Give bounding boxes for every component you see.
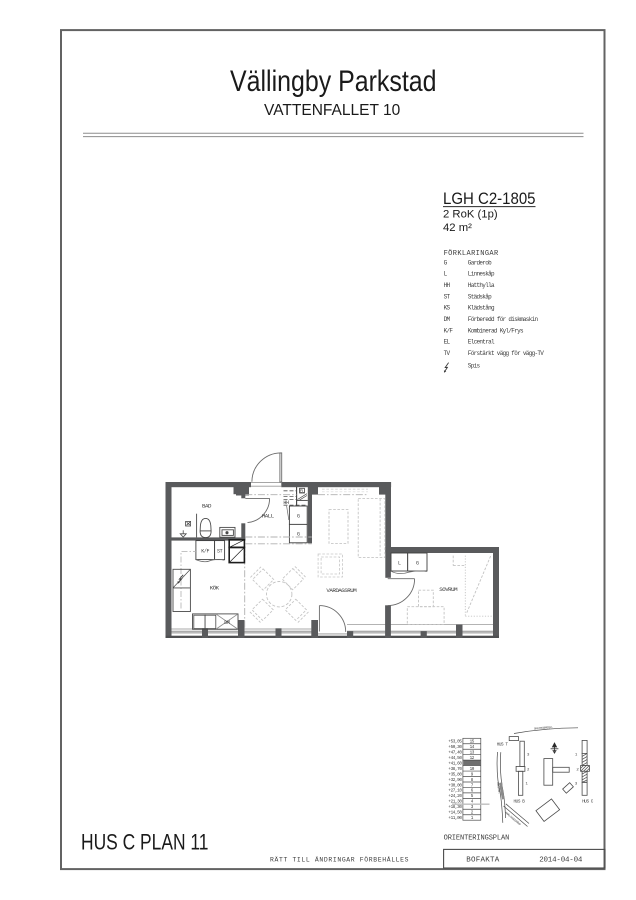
svg-text:Spis: Spis (468, 363, 481, 370)
svg-text:Städskåp: Städskåp (468, 293, 492, 300)
svg-text:SKATTEGÅRDSV.: SKATTEGÅRDSV. (534, 725, 554, 731)
svg-text:HH: HH (444, 282, 451, 289)
svg-text:2: 2 (576, 769, 579, 773)
svg-text:+27,10: +27,10 (448, 789, 462, 794)
svg-text:+47,40: +47,40 (448, 751, 462, 756)
svg-text:42 m²: 42 m² (443, 222, 472, 234)
svg-text:HH: HH (283, 500, 289, 506)
svg-text:G: G (297, 513, 300, 519)
svg-text:G: G (297, 532, 300, 538)
svg-text:KS: KS (444, 305, 451, 312)
svg-text:2014-04-04: 2014-04-04 (539, 856, 583, 864)
svg-text:DM: DM (444, 316, 451, 323)
svg-text:LGH C2-1805: LGH C2-1805 (443, 190, 536, 208)
svg-text:+11,00: +11,00 (448, 816, 462, 821)
svg-text:+24,20: +24,20 (448, 794, 462, 799)
svg-text:G: G (416, 561, 419, 567)
svg-text:2: 2 (527, 769, 530, 773)
svg-text:Förstärkt vägg för vägg-TV: Förstärkt vägg för vägg-TV (468, 350, 545, 357)
svg-text:+38,70: +38,70 (448, 767, 462, 772)
svg-text:SOVRUM: SOVRUM (439, 586, 458, 593)
svg-text:+35,80: +35,80 (448, 772, 462, 777)
svg-text:HUS C PLAN 11: HUS C PLAN 11 (81, 830, 209, 855)
svg-text:Linneskåp: Linneskåp (468, 271, 495, 278)
svg-text:2 RoK (1p): 2 RoK (1p) (443, 209, 498, 221)
svg-text:EL: EL (444, 339, 451, 346)
svg-text:EL: EL (300, 489, 305, 494)
svg-text:Klädstång: Klädstång (468, 305, 495, 312)
svg-text:FÖRKLARINGAR: FÖRKLARINGAR (444, 249, 499, 258)
svg-text:KRÄLINGEGRÄND: KRÄLINGEGRÄND (504, 811, 522, 827)
svg-text:KÖK: KÖK (210, 585, 220, 592)
svg-text:BOFAKTA: BOFAKTA (466, 856, 500, 864)
svg-text:HALL: HALL (262, 513, 275, 520)
svg-text:3: 3 (575, 783, 578, 787)
svg-text:VARDAGSRUM: VARDAGSRUM (326, 587, 357, 594)
svg-text:+30,00: +30,00 (448, 783, 462, 788)
svg-text:ST: ST (444, 293, 451, 300)
svg-text:HUS B: HUS B (514, 800, 526, 805)
svg-text:1: 1 (575, 754, 578, 758)
svg-text:ST: ST (217, 549, 223, 555)
svg-text:Hatthylla: Hatthylla (468, 282, 495, 289)
svg-text:+50,30: +50,30 (448, 745, 462, 750)
svg-text:+32,90: +32,90 (448, 778, 462, 783)
svg-text:VATTENFALLET 10: VATTENFALLET 10 (264, 102, 401, 119)
svg-text:RÄTT TILL ÄNDRINGAR FÖRBEHÅLLE: RÄTT TILL ÄNDRINGAR FÖRBEHÅLLES (270, 856, 409, 864)
svg-text:K/F: K/F (444, 327, 454, 334)
svg-text:HUS T: HUS T (497, 743, 509, 748)
svg-text:ORIENTERINGSPLAN: ORIENTERINGSPLAN (444, 835, 510, 843)
svg-text:HUS C: HUS C (582, 800, 594, 805)
svg-text:K/F: K/F (201, 549, 209, 555)
svg-text:+53,05: +53,05 (448, 740, 462, 745)
svg-text:G: G (444, 259, 448, 266)
svg-text:+41,60: +41,60 (448, 761, 462, 766)
svg-text:Förberedd för diskmaskin: Förberedd för diskmaskin (468, 316, 539, 323)
svg-text:3: 3 (527, 754, 530, 758)
svg-text:L: L (444, 271, 448, 278)
svg-text:TV: TV (444, 350, 451, 357)
svg-text:+14,50: +14,50 (448, 811, 462, 816)
svg-text:+18,30: +18,30 (448, 805, 462, 810)
svg-text:L: L (398, 561, 401, 567)
svg-text:1: 1 (526, 783, 529, 787)
svg-text:+44,50: +44,50 (448, 756, 462, 761)
svg-text:BAD: BAD (202, 502, 212, 509)
svg-text:Garderob: Garderob (468, 259, 492, 266)
svg-text:DM: DM (224, 620, 230, 626)
svg-text:Kombinerad Kyl/Frys: Kombinerad Kyl/Frys (468, 327, 524, 334)
svg-text:Vällingby Parkstad: Vällingby Parkstad (230, 65, 437, 98)
svg-text:Elcentral: Elcentral (468, 339, 495, 346)
